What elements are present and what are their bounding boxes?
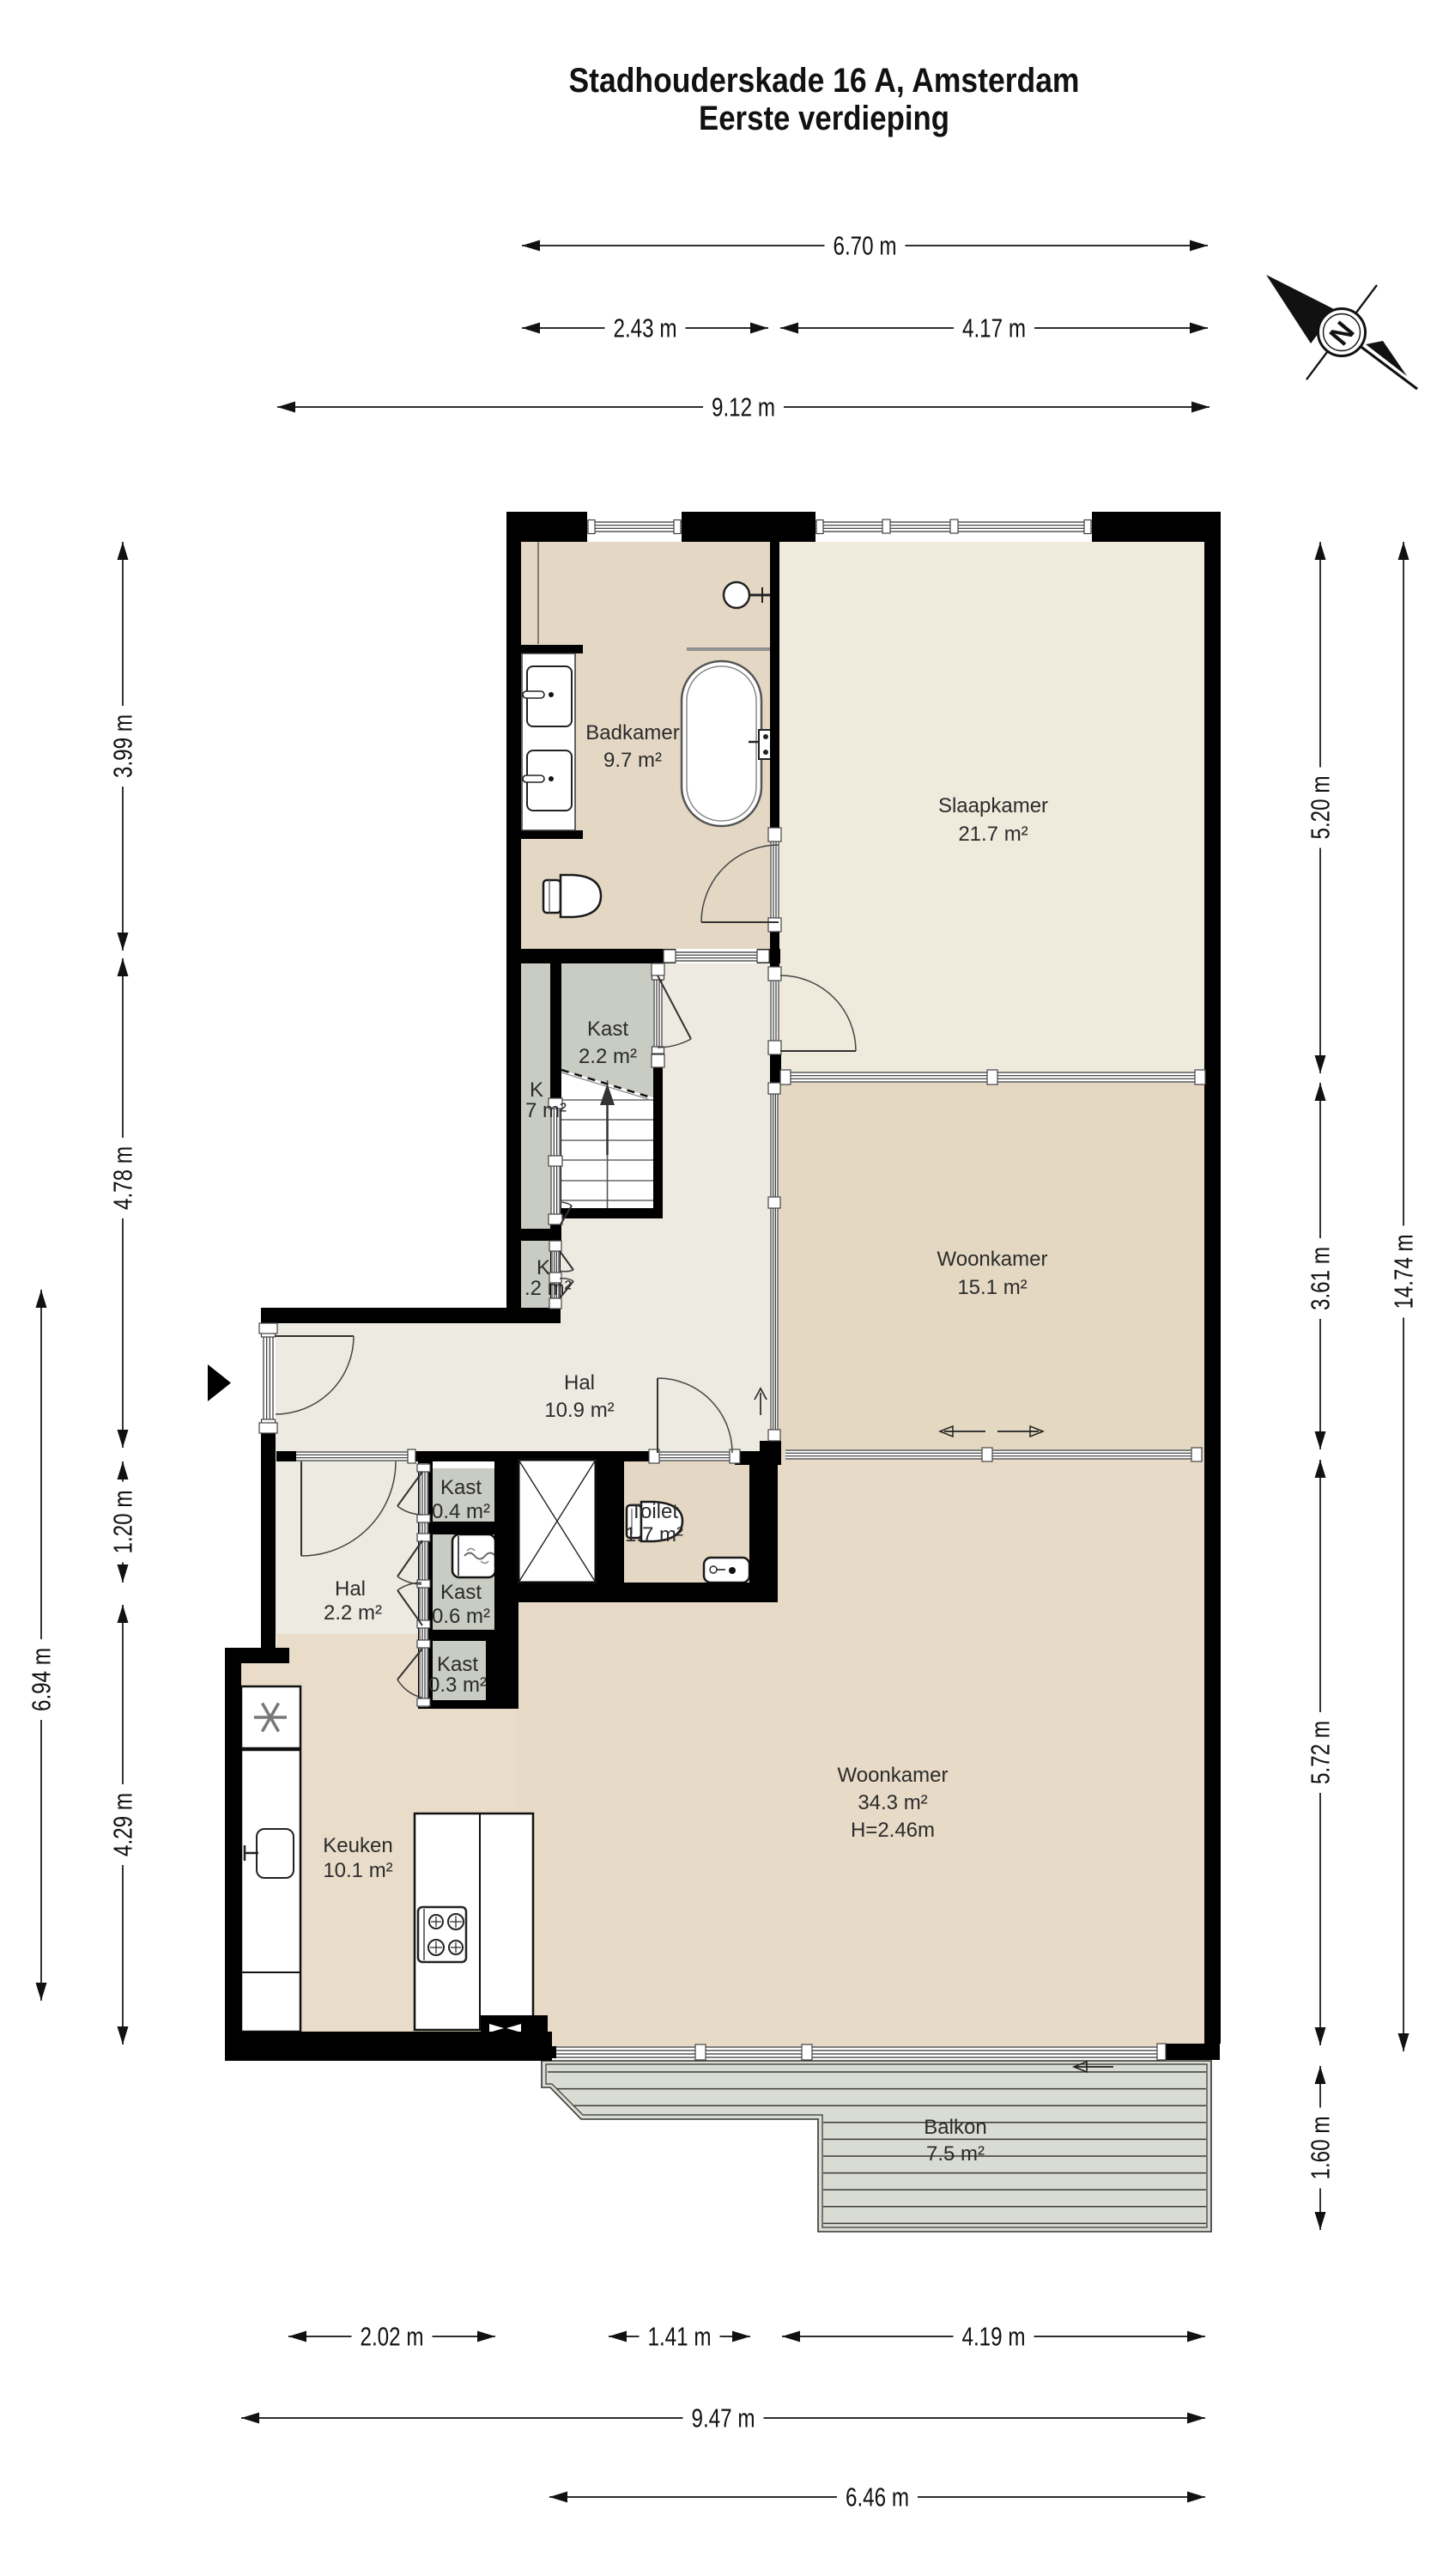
svg-text:1.20 m: 1.20 m — [108, 1491, 138, 1554]
svg-text:Toilet: Toilet — [630, 1500, 678, 1523]
svg-text:Kast: Kast — [440, 1581, 482, 1604]
svg-text:15.1 m²: 15.1 m² — [957, 1276, 1027, 1299]
svg-text:Kast: Kast — [440, 1476, 482, 1499]
svg-text:6.94 m: 6.94 m — [27, 1648, 57, 1711]
svg-text:Woonkamer: Woonkamer — [838, 1764, 949, 1787]
svg-text:5.72 m: 5.72 m — [1306, 1721, 1336, 1784]
svg-text:4.17 m: 4.17 m — [962, 313, 1026, 343]
svg-text:10.9 m²: 10.9 m² — [544, 1399, 614, 1422]
svg-text:0.3 m²: 0.3 m² — [428, 1674, 487, 1697]
svg-text:9.7 m²: 9.7 m² — [603, 749, 662, 772]
svg-text:1.7 m²: 1.7 m² — [625, 1523, 683, 1546]
svg-text:6.70 m: 6.70 m — [834, 231, 897, 261]
svg-text:4.78 m: 4.78 m — [108, 1146, 138, 1210]
svg-text:9.12 m: 9.12 m — [712, 392, 775, 422]
svg-text:K: K — [537, 1256, 550, 1279]
svg-text:Balkon: Balkon — [924, 2116, 986, 2139]
svg-text:Slaapkamer: Slaapkamer — [938, 794, 1048, 817]
svg-text:K: K — [530, 1078, 543, 1102]
svg-text:4.29 m: 4.29 m — [108, 1793, 138, 1856]
svg-text:10.1 m²: 10.1 m² — [323, 1859, 392, 1882]
svg-text:9.47 m: 9.47 m — [692, 2403, 755, 2433]
svg-text:14.74 m: 14.74 m — [1389, 1235, 1419, 1309]
svg-text:Kast: Kast — [587, 1018, 628, 1041]
svg-text:Hal: Hal — [564, 1371, 595, 1394]
svg-text:Stadhouderskade 16 A, Amsterda: Stadhouderskade 16 A, Amsterdam — [569, 62, 1080, 100]
svg-text:2.02 m: 2.02 m — [361, 2322, 424, 2352]
svg-text:21.7 m²: 21.7 m² — [958, 823, 1028, 846]
svg-text:3.61 m: 3.61 m — [1306, 1247, 1336, 1310]
svg-text:1.60 m: 1.60 m — [1306, 2117, 1336, 2180]
svg-text:Kast: Kast — [437, 1653, 478, 1676]
svg-text:Badkamer: Badkamer — [585, 721, 679, 744]
svg-text:3.99 m: 3.99 m — [108, 714, 138, 778]
svg-text:Hal: Hal — [335, 1577, 366, 1601]
svg-text:1.41 m: 1.41 m — [648, 2322, 712, 2352]
svg-text:.2 m²: .2 m² — [524, 1277, 572, 1300]
svg-text:0.4 m²: 0.4 m² — [432, 1500, 490, 1523]
svg-text:34.3 m²: 34.3 m² — [858, 1791, 927, 1814]
svg-text:2.2 m²: 2.2 m² — [579, 1045, 637, 1068]
svg-text:Woonkamer: Woonkamer — [937, 1248, 1048, 1271]
svg-text:Keuken: Keuken — [323, 1834, 392, 1857]
svg-text:H=2.46m: H=2.46m — [851, 1819, 935, 1842]
svg-text:Eerste verdieping: Eerste verdieping — [699, 100, 949, 137]
svg-text:0.6 m²: 0.6 m² — [432, 1605, 490, 1628]
svg-text:4.19 m: 4.19 m — [962, 2322, 1026, 2352]
svg-text:7 m²: 7 m² — [525, 1099, 567, 1122]
svg-text:6.46 m: 6.46 m — [846, 2482, 909, 2512]
svg-text:7.5 m²: 7.5 m² — [926, 2142, 985, 2166]
svg-text:2.2 m²: 2.2 m² — [324, 1601, 382, 1625]
svg-text:2.43 m: 2.43 m — [614, 313, 677, 343]
svg-text:5.20 m: 5.20 m — [1306, 776, 1336, 840]
